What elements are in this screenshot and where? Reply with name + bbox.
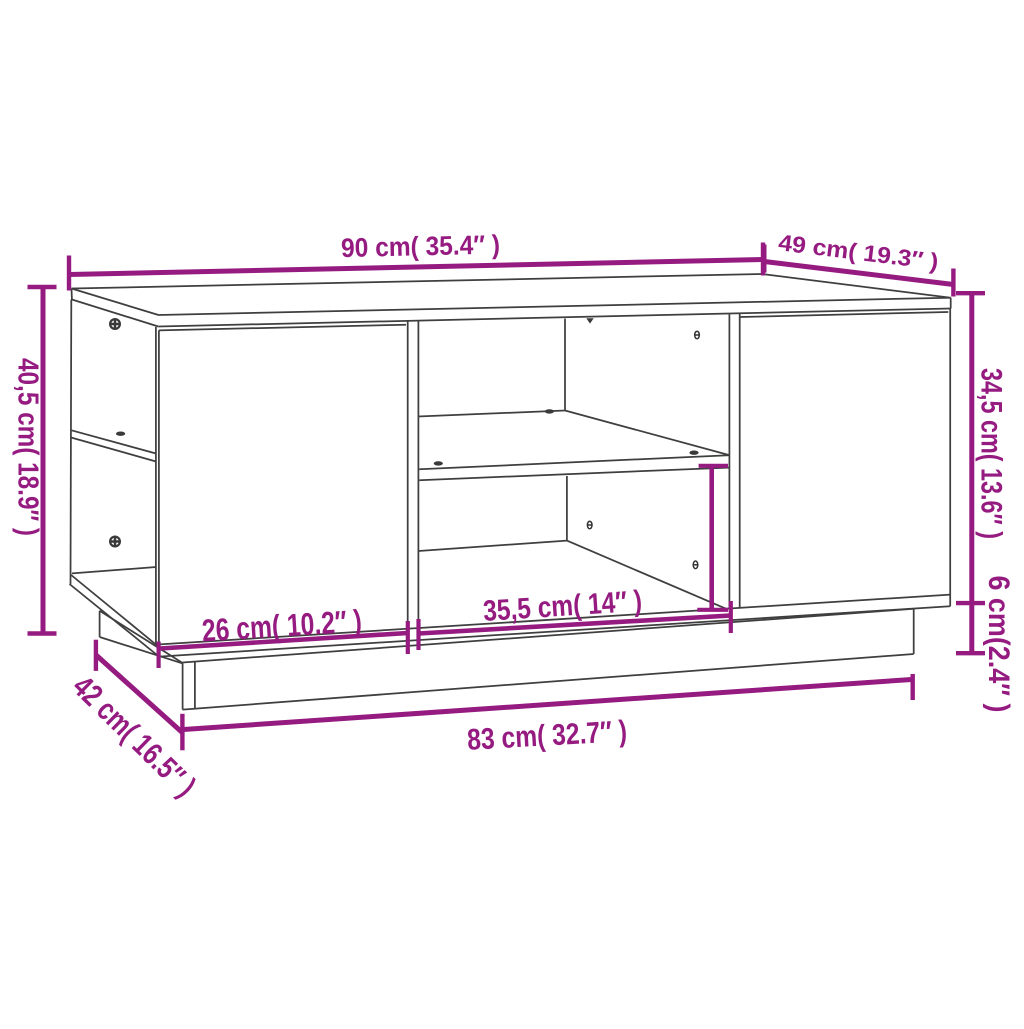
svg-text:40,5 cm( 18.9″ ): 40,5 cm( 18.9″ ) [12,358,44,536]
svg-text:6 cm(2.4″ ): 6 cm(2.4″ ) [982,576,1015,713]
svg-text:26 cm( 10.2″ ): 26 cm( 10.2″ ) [201,603,363,649]
svg-text:34,5 cm( 13.6″ ): 34,5 cm( 13.6″ ) [975,368,1008,539]
svg-text:83 cm( 32.7″ ): 83 cm( 32.7″ ) [466,715,628,757]
svg-text:90 cm( 35.4″ ): 90 cm( 35.4″ ) [341,230,501,264]
